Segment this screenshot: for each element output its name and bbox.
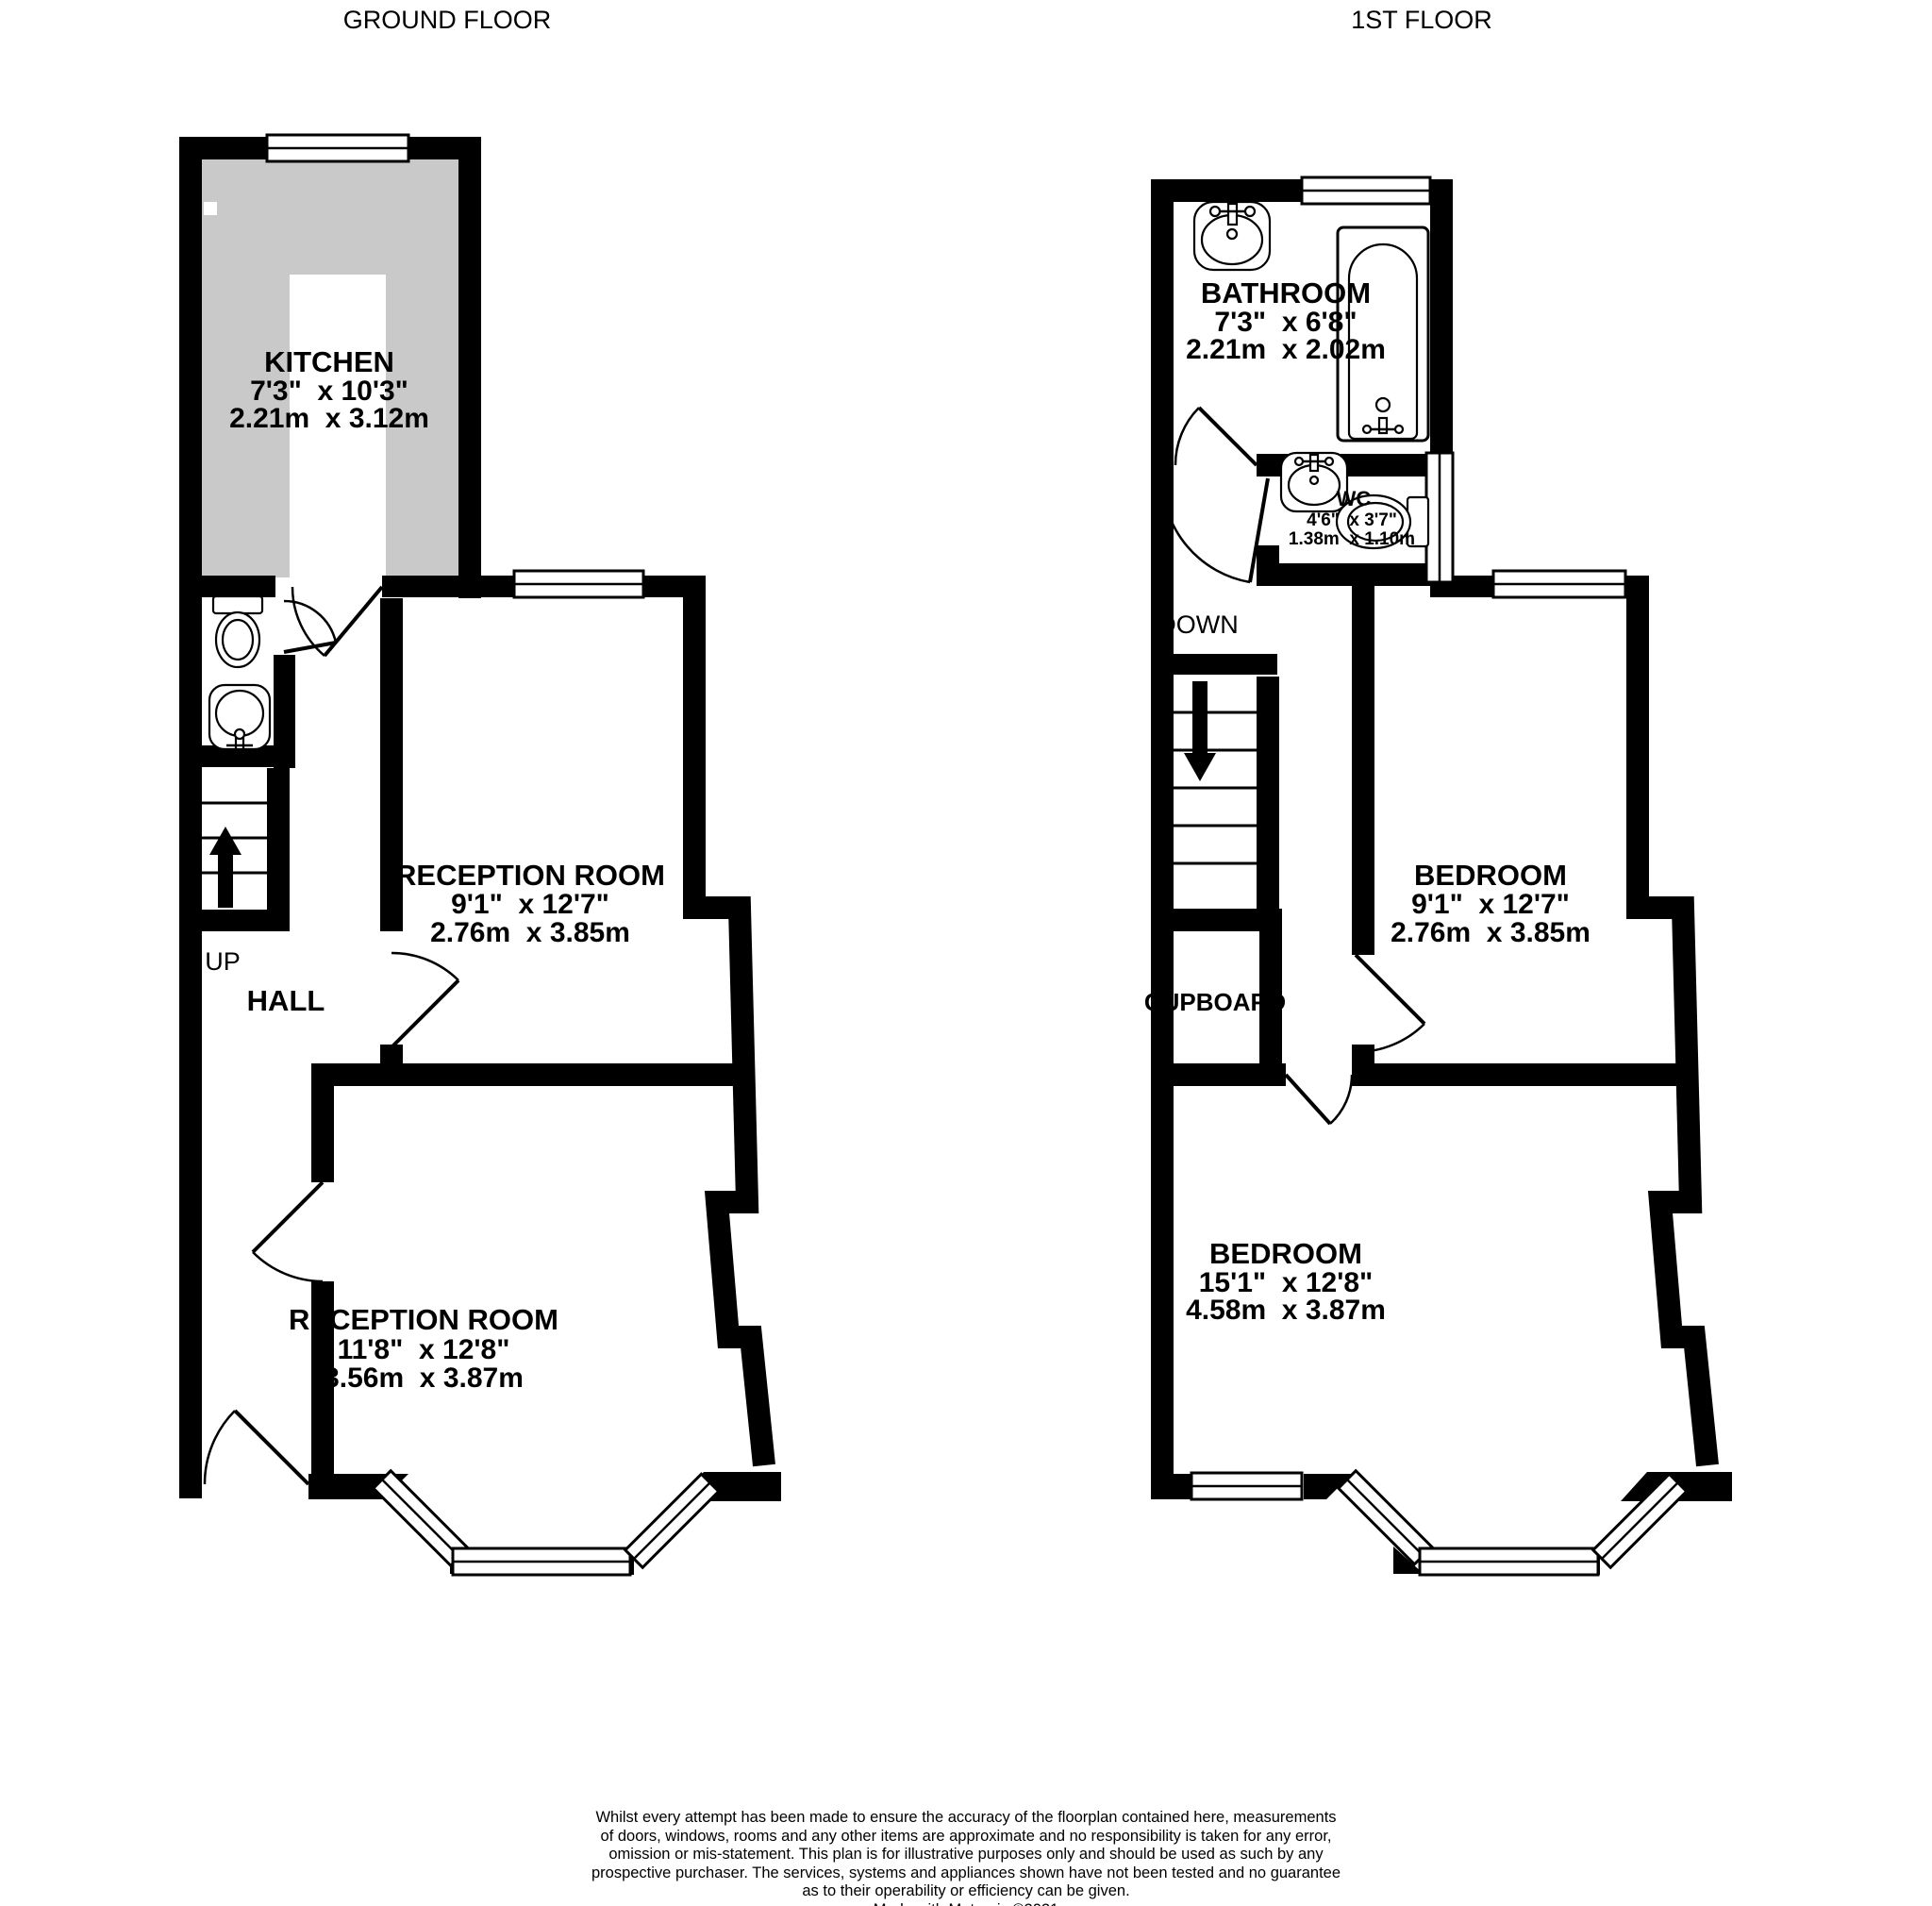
disclaimer-line: omission or mis-statement. This plan is … (0, 1846, 1932, 1864)
reception2-imperial: 11'8" x 12'8" (338, 1334, 510, 1365)
bathroom-label: BATHROOM (1201, 276, 1371, 309)
bedroom2-metric: 4.58m x 3.87m (1186, 1295, 1386, 1326)
bay2-window-left-icon (1339, 1471, 1432, 1564)
hall-label: HALL (247, 984, 325, 1017)
ground-toilet-icon (213, 596, 262, 667)
reception1-label: RECEPTION ROOM (395, 859, 665, 892)
bedroom1-imperial: 9'1" x 12'7" (1411, 889, 1570, 920)
bathroom-sink-icon (1194, 202, 1270, 270)
bedroom1-window-icon (1493, 571, 1625, 597)
reception1-imperial: 9'1" x 12'7" (451, 889, 609, 920)
front-door-icon (205, 1411, 308, 1484)
bedroom1-metric: 2.76m x 3.85m (1391, 917, 1591, 948)
wc-imperial: 4'6" x 3'7" (1307, 510, 1397, 530)
bathroom-door-icon (1175, 408, 1257, 465)
ground-floor-plan: GROUND FLOOR KITCHEN 7'3" x 10'3" 2.21m … (179, 6, 781, 1575)
down-label: DOWN (1158, 610, 1238, 639)
bay-window-bottom-icon (453, 1548, 630, 1575)
wc-metric: 1.38m x 1.10m (1289, 529, 1415, 549)
kitchen-door-icon (292, 587, 382, 656)
disclaimer-line: of doors, windows, rooms and any other i… (0, 1828, 1932, 1847)
cupboard-label: CUPBOARD (1144, 988, 1286, 1016)
up-label: UP (205, 947, 241, 976)
reception2-label: RECEPTION ROOM (289, 1303, 558, 1336)
first-floor-title: 1ST FLOOR (1351, 6, 1492, 34)
wc-label: WC (1337, 487, 1372, 510)
bedroom2-label: BEDROOM (1209, 1237, 1362, 1270)
floorplan-drawing: GROUND FLOOR KITCHEN 7'3" x 10'3" 2.21m … (0, 0, 1932, 1906)
bathroom-window-icon (1302, 177, 1430, 204)
disclaimer-line: prospective purchaser. The services, sys… (0, 1864, 1932, 1883)
wc-door-icon (284, 601, 336, 652)
stairs-up-icon (202, 803, 267, 908)
wc-door-first-icon (1162, 478, 1268, 582)
kitchen-label: KITCHEN (264, 345, 394, 378)
disclaimer-line: Whilst every attempt has been made to en… (0, 1809, 1932, 1828)
first-floor-plan: 1ST FLOOR BATHROOM 7'3" x 6'8" 2.21m x 2… (1144, 6, 1732, 1575)
reception1-metric: 2.76m x 3.85m (430, 917, 630, 948)
kitchen-metric: 2.21m x 3.12m (229, 403, 429, 434)
stairs-down-icon (1174, 681, 1257, 863)
reception1-door-icon (391, 953, 458, 1047)
reception2-door-icon (253, 1182, 323, 1281)
kitchen-window-icon (267, 135, 408, 161)
bedroom2-window-left-icon (1191, 1473, 1302, 1499)
reception1-window-icon (514, 571, 643, 597)
bay2-window-bottom-icon (1420, 1548, 1598, 1575)
floorplan-page: GROUND FLOOR KITCHEN 7'3" x 10'3" 2.21m … (0, 0, 1932, 1906)
disclaimer-line: as to their operability or efficiency ca… (0, 1882, 1932, 1901)
metropix-credit: Made with Metropix ©2021 (0, 1901, 1932, 1906)
bedroom1-door-icon (1356, 955, 1424, 1052)
wc-window-icon (1426, 453, 1453, 582)
bay-window-right-icon (625, 1474, 719, 1567)
ground-sink-icon (209, 685, 270, 749)
disclaimer: Whilst every attempt has been made to en… (0, 1809, 1932, 1906)
reception2-metric: 3.56m x 3.87m (324, 1363, 524, 1394)
bedroom1-label: BEDROOM (1414, 859, 1567, 892)
ground-floor-title: GROUND FLOOR (343, 6, 552, 34)
bedroom2-door-icon (1286, 1075, 1352, 1124)
bathroom-metric: 2.21m x 2.02m (1186, 334, 1386, 365)
